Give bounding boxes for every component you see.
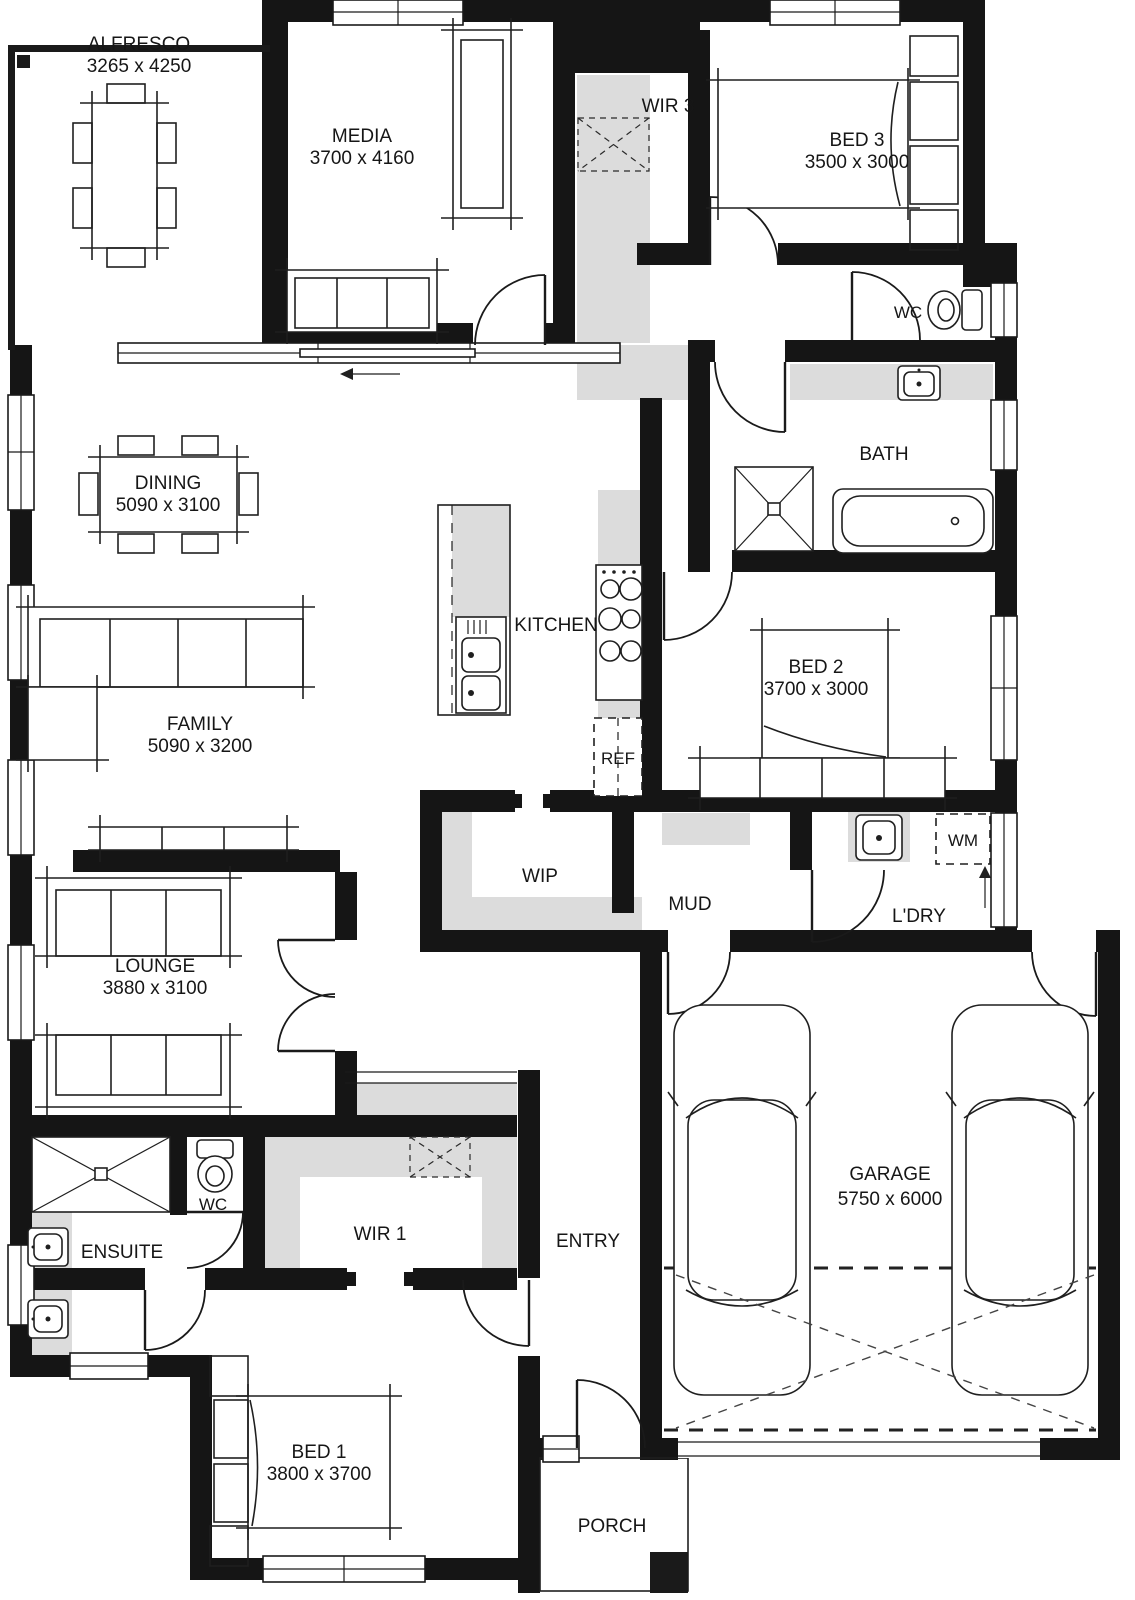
room-label-wc-upper: WC	[894, 303, 922, 322]
room-label-wm: WM	[948, 831, 978, 850]
room-label-wip: WIP	[522, 866, 558, 887]
bed2-bed	[688, 618, 957, 810]
room-label-ldry: L'DRY	[892, 906, 946, 927]
window-icon	[8, 945, 34, 1040]
room-label-ensuite: ENSUITE	[81, 1242, 163, 1263]
slide-direction-arrow	[340, 368, 400, 380]
room-dims-garage: 5750 x 6000	[838, 1189, 943, 1210]
floor-plan-svg: ALFRESCO 3265 x 4250 MEDIA 3700 x 4160 W…	[0, 0, 1135, 1600]
window-icon	[333, 0, 463, 25]
room-label-ref: REF	[601, 749, 635, 768]
window-icon	[70, 1353, 148, 1379]
ensuite-door	[145, 1290, 205, 1350]
ensuite-shower-icon	[32, 1137, 170, 1212]
basin-icon	[28, 1300, 68, 1338]
room-dims-dining: 5090 x 3100	[116, 495, 221, 516]
cooktop-icon	[596, 565, 642, 700]
garage-door-opening	[678, 1440, 1040, 1458]
sink-icon	[898, 366, 940, 400]
room-label-garage: GARAGE	[849, 1164, 930, 1185]
room-dims-bed2: 3700 x 3000	[764, 679, 869, 700]
room-label-family: FAMILY	[167, 714, 233, 735]
window-icon	[991, 283, 1017, 337]
bathtub-icon	[833, 489, 993, 553]
shower-icon	[735, 467, 813, 551]
window-icon	[991, 616, 1017, 760]
floor-plan-page: ALFRESCO 3265 x 4250 MEDIA 3700 x 4160 W…	[0, 0, 1135, 1600]
room-dims-media: 3700 x 4160	[310, 148, 415, 169]
garage-car	[668, 1005, 816, 1395]
room-label-kitchen: KITCHEN	[514, 615, 597, 636]
toilet-icon	[197, 1140, 233, 1192]
room-label-alfresco: ALFRESCO	[88, 34, 190, 55]
lounge-double-door-bottom	[278, 994, 335, 1051]
bed2-door	[664, 572, 732, 640]
room-label-wir1: WIR 1	[354, 1224, 407, 1245]
room-label-bed3: BED 3	[830, 130, 885, 151]
kitchen-sink-icon	[456, 617, 506, 713]
room-label-bed1: BED 1	[292, 1442, 347, 1463]
room-dims-alfresco: 3265 x 4250	[87, 56, 192, 77]
room-label-bath: BATH	[859, 444, 908, 465]
highlight-window	[345, 1072, 517, 1083]
room-label-porch: PORCH	[578, 1516, 647, 1537]
room-label-dining: DINING	[135, 473, 202, 494]
wc-lower-door	[187, 1212, 243, 1268]
window-icon	[263, 1556, 425, 1582]
window-icon	[991, 813, 1017, 927]
toilet-icon	[928, 290, 982, 330]
wir1-linen	[410, 1137, 470, 1177]
basin-icon	[28, 1228, 68, 1266]
front-door	[577, 1380, 645, 1448]
room-dims-bed3: 3500 x 3000	[805, 152, 910, 173]
laundry-exit-arrow	[979, 866, 991, 908]
garage-car	[946, 1005, 1094, 1395]
window-icon	[991, 400, 1017, 470]
lounge-double-door-top	[278, 940, 335, 997]
wir3-linen	[578, 118, 649, 171]
bath-door	[715, 362, 785, 432]
room-label-entry: ENTRY	[556, 1231, 620, 1252]
room-label-lounge: LOUNGE	[115, 956, 195, 977]
window-icon	[543, 1436, 579, 1462]
room-label-bed2: BED 2	[789, 657, 844, 678]
window-icon	[8, 395, 34, 510]
alfresco-table	[73, 84, 176, 267]
room-dims-lounge: 3880 x 3100	[103, 978, 208, 999]
room-label-mud: MUD	[668, 894, 711, 915]
window-icon	[770, 0, 900, 25]
room-dims-family: 5090 x 3200	[148, 736, 253, 757]
room-label-media: MEDIA	[332, 126, 393, 147]
room-dims-bed1: 3800 x 3700	[267, 1464, 372, 1485]
window-icon	[8, 760, 34, 855]
stacker-door	[118, 343, 620, 363]
room-label-wir3: WIR 3	[642, 96, 695, 117]
media-sofa	[275, 18, 523, 344]
room-label-wc-lower: WC	[199, 1195, 227, 1214]
laundry-sink-icon	[856, 815, 902, 860]
media-door	[475, 275, 545, 345]
